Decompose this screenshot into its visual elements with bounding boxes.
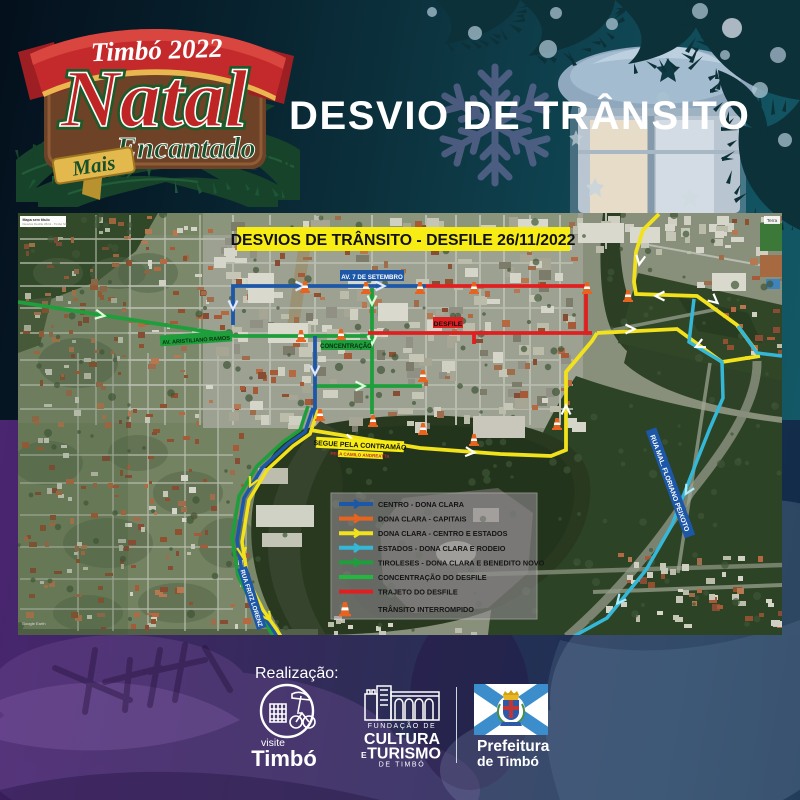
svg-text:Google Earth: Google Earth xyxy=(22,621,46,626)
svg-text:FUNDAÇÃO DE: FUNDAÇÃO DE xyxy=(368,721,437,730)
svg-text:DESVIOS DE TRÂNSITO - DESFILE: DESVIOS DE TRÂNSITO - DESFILE 26/11/2022 xyxy=(231,230,576,249)
svg-text:TURISMO: TURISMO xyxy=(367,746,441,763)
svg-text:de Timbó: de Timbó xyxy=(477,753,539,769)
svg-text:TRAJETO DO DESFILE: TRAJETO DO DESFILE xyxy=(378,588,458,597)
svg-text:CONCENTRAÇÃO: CONCENTRAÇÃO xyxy=(320,343,372,350)
svg-text:CONCENTRAÇÃO DO DESFILE: CONCENTRAÇÃO DO DESFILE xyxy=(378,573,487,582)
svg-text:TIROLESES - DONA CLARA E BENE: TIROLESES - DONA CLARA E BENEDITO NOVO xyxy=(378,558,545,567)
svg-text:Terra: Terra xyxy=(767,218,778,223)
svg-text:Desvios Desfile 26/11 - Timbó: Desvios Desfile 26/11 - Timbó SC xyxy=(23,222,68,226)
svg-text:E: E xyxy=(361,750,367,760)
svg-text:DONA CLARA - CENTRO E ESTADOS: DONA CLARA - CENTRO E ESTADOS xyxy=(378,529,508,538)
svg-text:ESTADOS - DONA CLARA E RODEIO: ESTADOS - DONA CLARA E RODEIO xyxy=(378,544,506,553)
svg-text:DONA CLARA - CAPITAIS: DONA CLARA - CAPITAIS xyxy=(378,515,467,524)
svg-text:Encantado: Encantado xyxy=(115,130,256,165)
svg-text:AV. 7 DE SETEMBRO: AV. 7 DE SETEMBRO xyxy=(341,274,403,281)
svg-text:DE TIMBÓ: DE TIMBÓ xyxy=(379,760,426,769)
svg-text:Timbó: Timbó xyxy=(251,746,317,771)
svg-text:CENTRO - DONA CLARA: CENTRO - DONA CLARA xyxy=(378,500,465,509)
svg-text:DESFILE: DESFILE xyxy=(434,321,463,328)
svg-text:TRÂNSITO INTERROMPIDO: TRÂNSITO INTERROMPIDO xyxy=(378,605,474,614)
